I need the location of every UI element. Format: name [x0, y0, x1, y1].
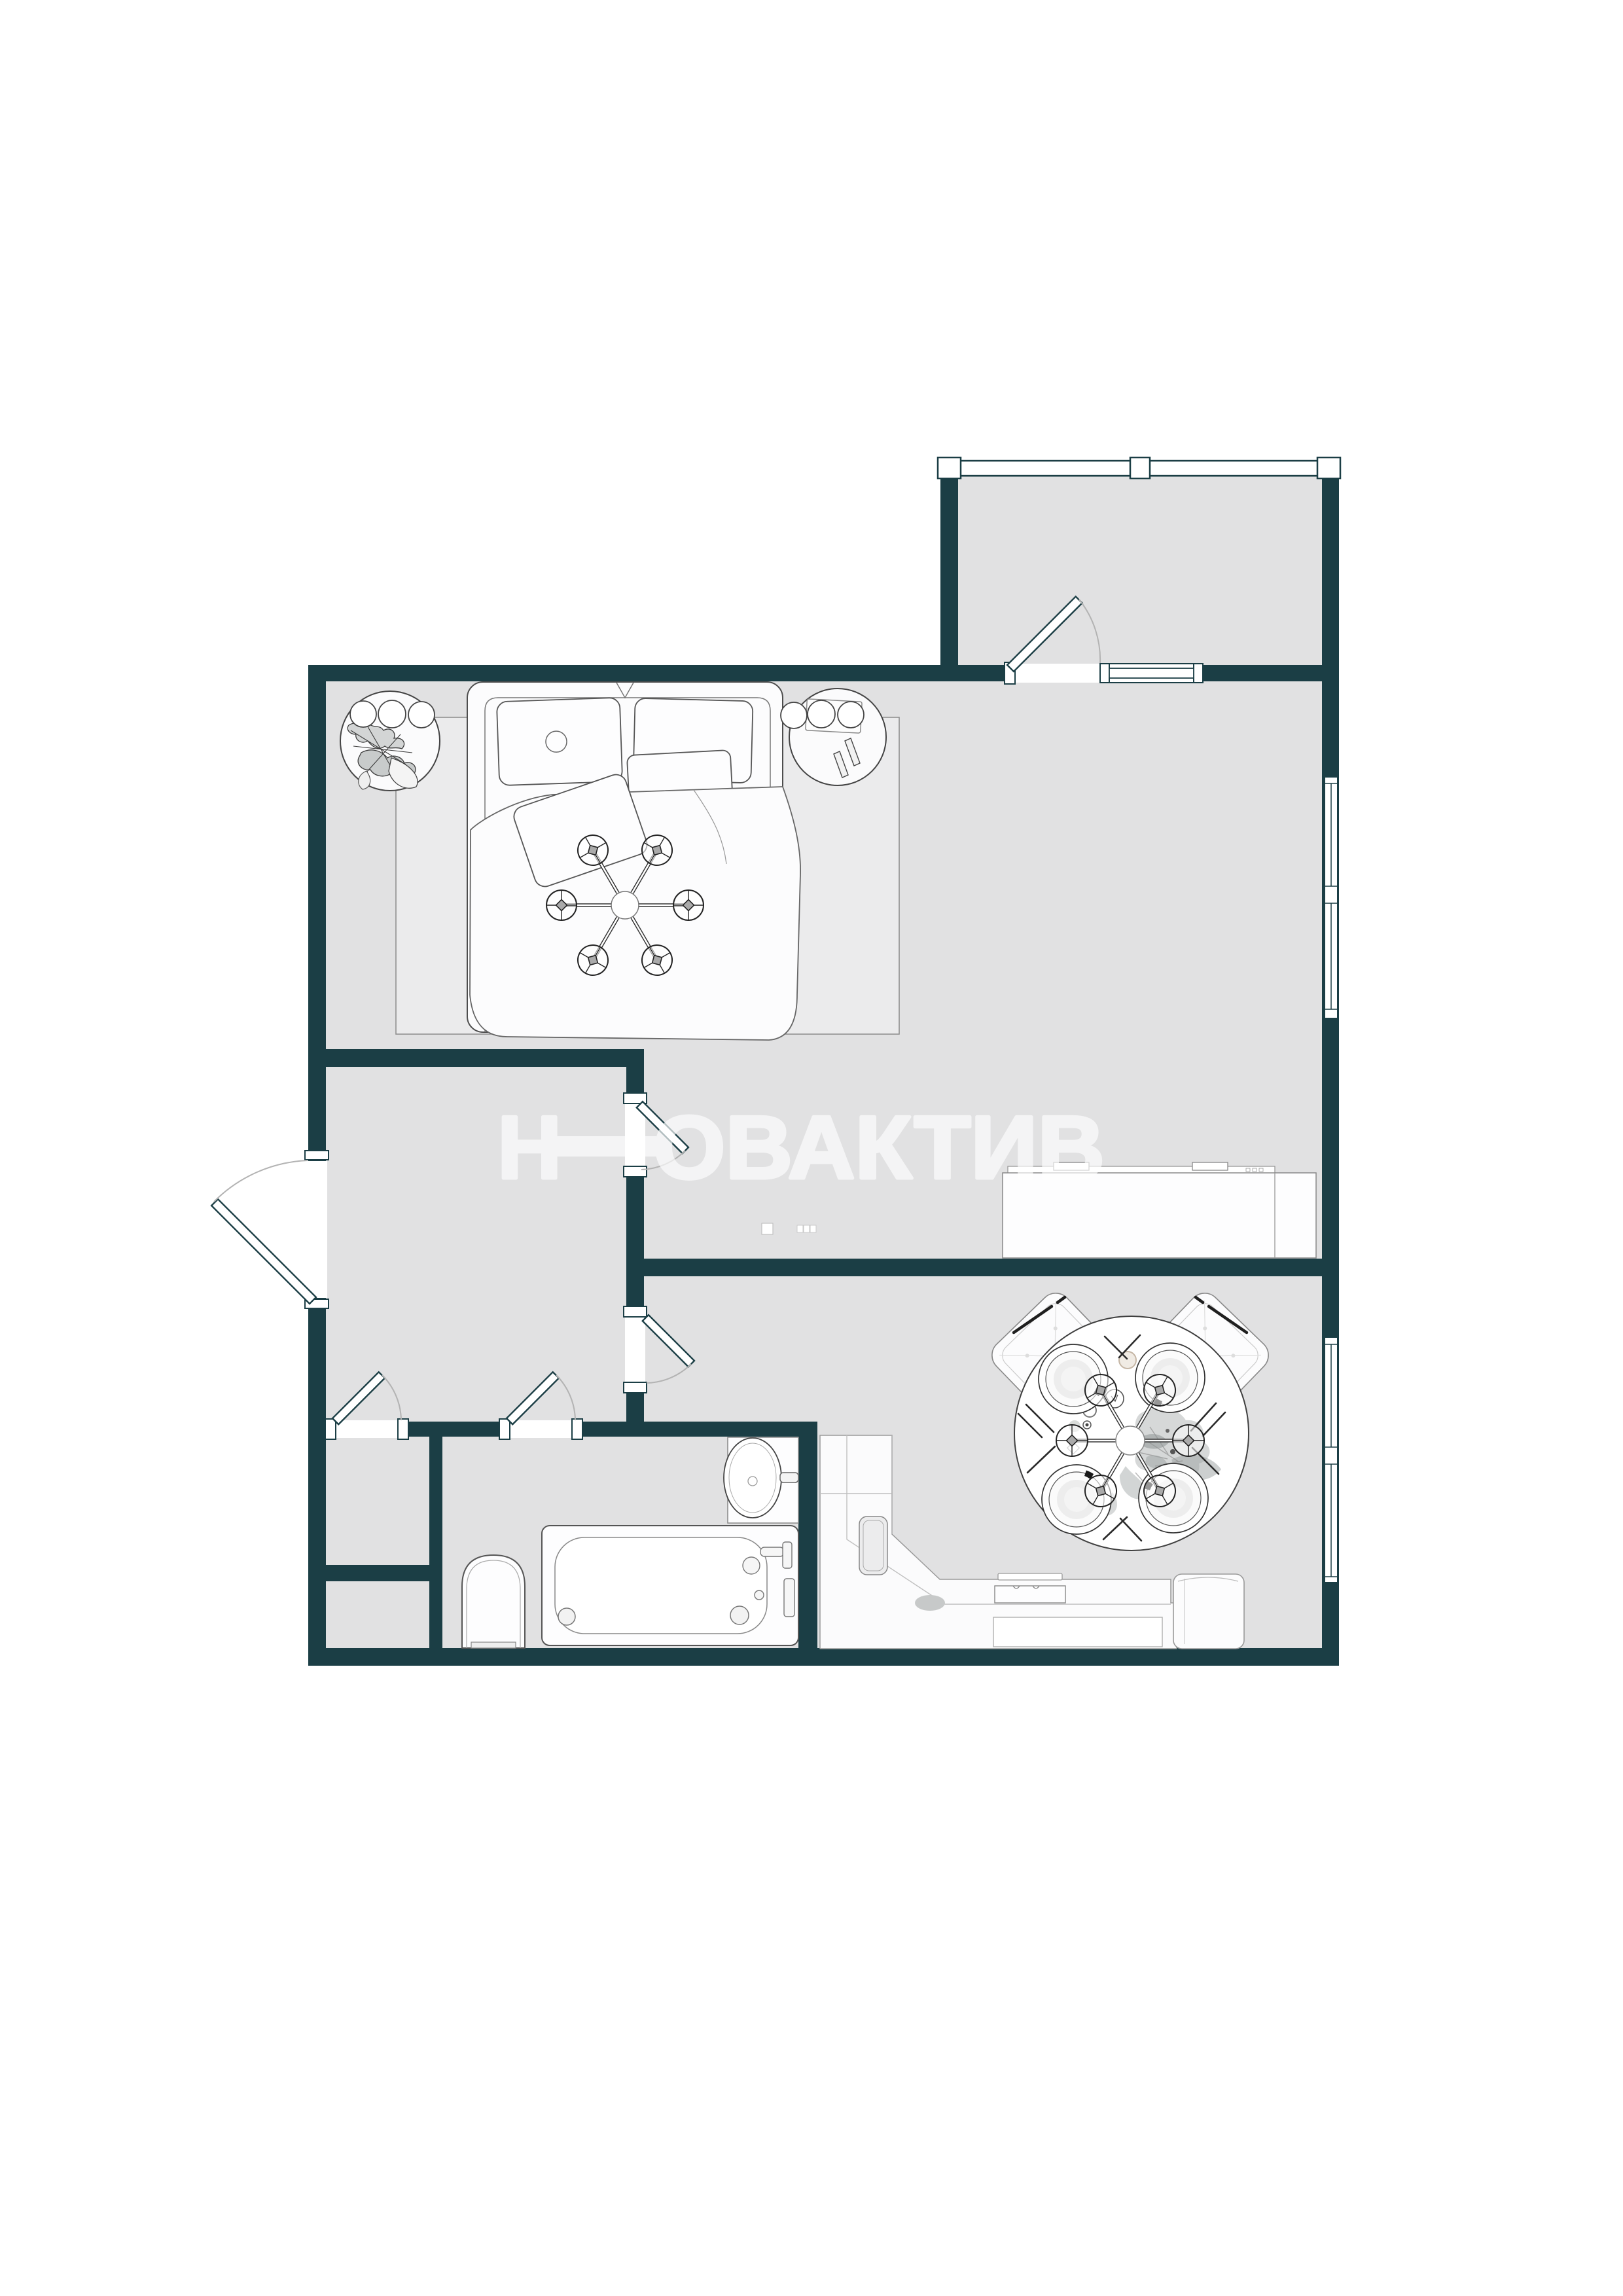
- svg-text:Н: Н: [497, 1098, 562, 1197]
- svg-text:ОВАКТИВ: ОВАКТИВ: [653, 1098, 1105, 1197]
